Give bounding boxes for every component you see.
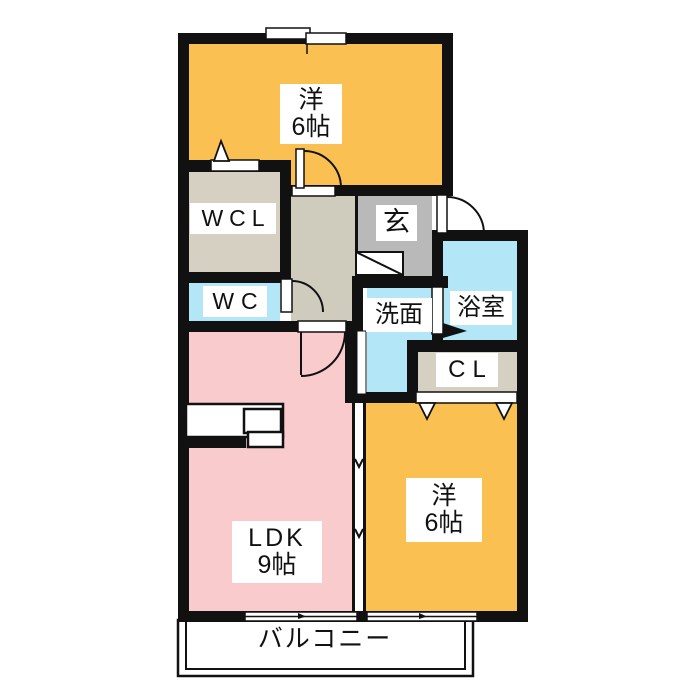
hallway-fill bbox=[291, 196, 356, 321]
kitchen-sink-lower bbox=[248, 432, 283, 447]
floor-plan: 洋 6帖 WCL WC 玄 浴室 洗面 CL LDK 9帖 洋 6帖 バルコニー bbox=[0, 0, 700, 700]
ldk-door-threshold bbox=[298, 321, 346, 332]
label-balcony: バルコニー bbox=[240, 625, 410, 653]
kitchen-base bbox=[186, 436, 246, 448]
label-bedroom-bottom-line1: 洋 bbox=[431, 483, 456, 510]
label-washroom: 洗面 bbox=[366, 298, 432, 332]
front-door-arc bbox=[447, 197, 484, 234]
front-door-leaf bbox=[437, 195, 447, 233]
label-bath: 浴室 bbox=[450, 291, 512, 325]
label-ldk: LDK 9帖 bbox=[232, 521, 322, 583]
closet-door-bar bbox=[416, 392, 517, 403]
label-closet: CL bbox=[436, 353, 498, 387]
floor-plan-drawing bbox=[0, 0, 700, 700]
bedroomtop-window-pane-1 bbox=[266, 28, 310, 39]
label-wc: WC bbox=[203, 286, 267, 317]
label-bedroom-bottom: 洋 6帖 bbox=[406, 478, 482, 542]
label-bedroom-bottom-line2: 6帖 bbox=[425, 510, 464, 537]
wall-wcl-right bbox=[280, 160, 291, 283]
partition-sliding-door bbox=[355, 403, 363, 611]
label-bedroom-top-line2: 6帖 bbox=[292, 114, 331, 141]
label-entrance: 玄 bbox=[376, 205, 417, 241]
label-ldk-line2: 9帖 bbox=[258, 552, 297, 579]
wall-bath-bottom bbox=[407, 340, 528, 352]
kitchen-sink bbox=[244, 409, 281, 433]
bedroomtop-window-pane-2 bbox=[306, 33, 346, 44]
label-wcl: WCL bbox=[190, 203, 276, 234]
label-bedroom-top-line1: 洋 bbox=[298, 87, 323, 114]
wall-wcl-bottom bbox=[178, 272, 291, 283]
bath-door-opening bbox=[432, 287, 443, 334]
label-ldk-line1: LDK bbox=[248, 525, 306, 552]
wall-ldk-washroom bbox=[345, 330, 357, 403]
wc-door-leaf bbox=[281, 279, 292, 312]
washroom-sliding-door bbox=[357, 331, 366, 394]
bedroomtop-door-leaf bbox=[296, 149, 304, 188]
label-bedroom-top: 洋 6帖 bbox=[280, 84, 342, 144]
wall-outer-topright bbox=[442, 33, 453, 196]
wall-outer-right bbox=[517, 230, 528, 622]
